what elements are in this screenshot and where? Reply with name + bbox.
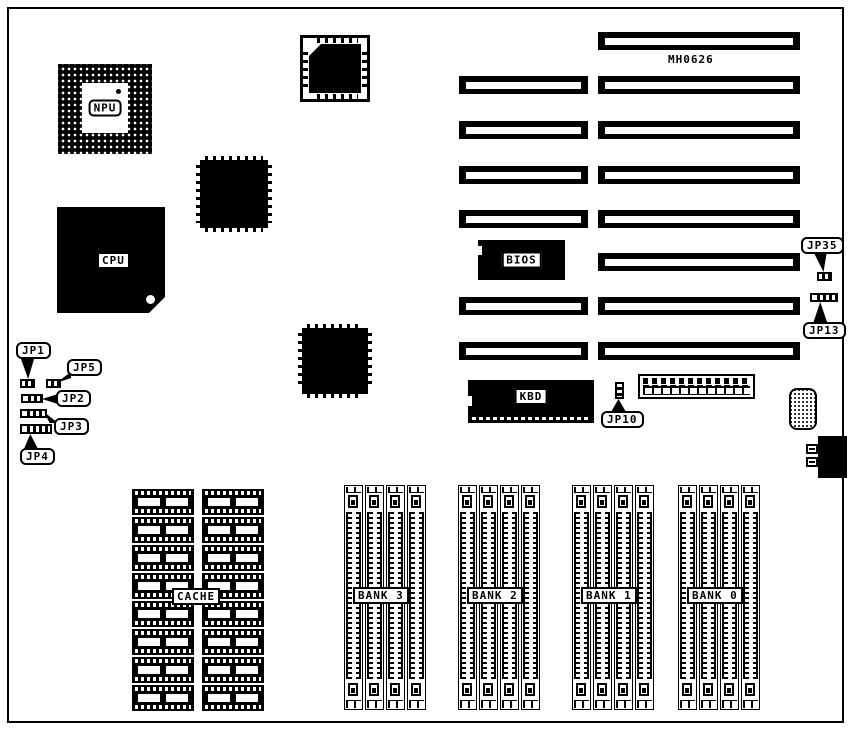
socket-latch-top-icon [724,495,734,508]
pin1-marker-icon [116,89,121,94]
simm-socket [741,485,760,710]
cache-chip-window-icon [208,610,230,618]
slot-contact-bar [605,172,793,179]
qfp-pins-icon [205,228,263,232]
socket-feet-icon [346,700,361,708]
socket-latch-bottom-icon [639,683,649,696]
socket-contacts-icon [409,512,424,679]
isa-slot-segment [598,32,800,50]
power-pin-boxes-icon [643,386,750,395]
socket-latch-top-icon [597,495,607,508]
cache-chip-window-icon [138,526,160,534]
cache-chip [132,657,194,683]
socket-header-icon [743,487,758,493]
socket-feet-icon [616,700,631,708]
cache-chip-window-icon [208,666,230,674]
socket-feet-icon [523,700,538,708]
isa-slot-segment [598,342,800,360]
slot-contact-bar [466,172,581,179]
socket-latch-top-icon [411,495,421,508]
bios-label: BIOS [501,252,542,269]
slot-contact-bar [605,259,793,266]
buzzer [789,388,817,430]
isa-slot-segment [598,253,800,271]
cache-chip [202,685,264,711]
power-pins-icon [643,378,750,384]
isa-slot-segment [598,166,800,184]
isa-slot-segment [598,121,800,139]
slot-contact-bar [605,216,793,223]
cache-chip-window-icon [138,666,160,674]
slot-contact-bar [605,127,793,134]
socket-latch-top-icon [462,495,472,508]
cache-chip [202,657,264,683]
isa-slot-segment [459,121,588,139]
kbd-label: KBD [515,388,548,405]
cache-chip [202,517,264,543]
socket-latch-top-icon [483,495,493,508]
socket-latch-top-icon [618,495,628,508]
cache-chip [132,517,194,543]
socket-latch-bottom-icon [682,683,692,696]
socket-feet-icon [460,700,475,708]
qfp-pins-icon [268,165,272,223]
socket-latch-top-icon [576,495,586,508]
qfp-pins-icon [307,324,363,328]
jp4-callout: JP4 [20,448,55,465]
cache-chip-window-icon [138,554,160,562]
isa-slot-segment [459,76,588,94]
socket-latch-bottom-icon [703,683,713,696]
cache-chip-window-icon [208,694,230,702]
slot-contact-bar [466,216,581,223]
qfp-pins-icon [196,165,200,223]
socket-feet-icon [574,700,589,708]
slot-contact-bar [466,127,581,134]
slot-contact-bar [605,348,793,355]
slot-contact-bar [605,303,793,310]
jp5-callout: JP5 [67,359,102,376]
jumper-jp13 [810,293,838,302]
socket-latch-top-icon [745,495,755,508]
socket-latch-top-icon [390,495,400,508]
isa-slot-segment [459,210,588,228]
socket-feet-icon [637,700,652,708]
qfp-pins-icon [298,333,302,389]
motherboard-diagram: NPU CPU MH0626 BIOS KBD [0,0,852,731]
chip-notch-icon [468,396,472,406]
jp35-callout: JP35 [801,237,844,254]
jp1-callout: JP1 [16,342,51,359]
socket-latch-top-icon [525,495,535,508]
cache-label: CACHE [172,588,220,605]
jumper-jp1 [20,379,35,388]
socket-header-icon [595,487,610,493]
cache-chip [132,545,194,571]
chip-notch-icon [478,246,482,255]
socket-latch-bottom-icon [597,683,607,696]
cache-chip [132,629,194,655]
qfp-pins-icon [368,333,372,389]
socket-header-icon [481,487,496,493]
socket-latch-top-icon [369,495,379,508]
bank-label: BANK 2 [467,587,523,604]
socket-header-icon [574,487,589,493]
jp10-callout: JP10 [601,411,644,428]
cache-chip-window-icon [138,582,160,590]
jumper-jp10 [615,382,624,399]
socket-feet-icon [722,700,737,708]
bank-label: BANK 1 [581,587,637,604]
slot-contact-bar [466,82,581,89]
npu-label: NPU [89,100,122,117]
cache-chip [202,489,264,515]
socket-feet-icon [680,700,695,708]
socket-header-icon [388,487,403,493]
qfp-pins-icon [307,394,363,398]
board-model-label: MH0626 [668,53,714,66]
socket-header-icon [722,487,737,493]
qfp-chip-2 [302,328,368,394]
cache-chip-window-icon [138,610,160,618]
socket-latch-bottom-icon [483,683,493,696]
plcc-pins-top-icon [312,38,358,43]
socket-header-icon [367,487,382,493]
jumper-jp35 [817,272,832,281]
pin1-marker-icon [146,295,155,304]
socket-latch-bottom-icon [525,683,535,696]
jumper-jp3 [20,409,47,418]
isa-slot-segment [598,297,800,315]
socket-latch-top-icon [682,495,692,508]
socket-feet-icon [481,700,496,708]
socket-feet-icon [409,700,424,708]
bank-label: BANK 0 [687,587,743,604]
socket-header-icon [701,487,716,493]
connector-tab-icon [806,457,818,467]
plcc-chip [300,35,370,102]
socket-latch-bottom-icon [724,683,734,696]
isa-slot-segment [459,166,588,184]
socket-header-icon [616,487,631,493]
socket-feet-icon [701,700,716,708]
qfp-chip-1 [200,160,268,228]
power-connector [638,374,755,399]
socket-header-icon [409,487,424,493]
cache-chip [202,545,264,571]
cache-chip-window-icon [208,526,230,534]
plcc-die [309,44,361,93]
socket-header-icon [460,487,475,493]
isa-slot-segment [598,210,800,228]
cache-chip-window-icon [208,498,230,506]
socket-latch-bottom-icon [348,683,358,696]
socket-feet-icon [595,700,610,708]
jp13-callout: JP13 [803,322,846,339]
keyboard-din-connector [818,436,847,478]
npu-socket-cavity: NPU [82,83,128,133]
socket-contacts-icon [523,512,538,679]
cache-chip [132,685,194,711]
simm-socket [407,485,426,710]
simm-socket [521,485,540,710]
socket-latch-top-icon [703,495,713,508]
socket-header-icon [502,487,517,493]
socket-feet-icon [367,700,382,708]
slot-contact-bar [605,82,793,89]
socket-latch-bottom-icon [745,683,755,696]
plcc-pins-bottom-icon [312,94,358,99]
cache-chip-window-icon [208,638,230,646]
connector-tab-icon [806,444,818,454]
plcc-pins-right-icon [362,47,367,90]
socket-latch-top-icon [348,495,358,508]
npu-socket: NPU [58,64,152,154]
socket-header-icon [346,487,361,493]
cache-chip-window-icon [208,554,230,562]
socket-latch-bottom-icon [462,683,472,696]
cache-chip-window-icon [138,638,160,646]
jumper-jp2 [21,394,43,403]
socket-latch-bottom-icon [369,683,379,696]
socket-latch-bottom-icon [411,683,421,696]
jp2-callout: JP2 [56,390,91,407]
isa-slot-segment [459,342,588,360]
jp3-callout: JP3 [54,418,89,435]
bank-label: BANK 3 [353,587,409,604]
bios-chip: BIOS [478,240,565,280]
plcc-pins-left-icon [303,47,308,90]
slot-contact-bar [466,303,581,310]
socket-latch-bottom-icon [504,683,514,696]
simm-socket [635,485,654,710]
slot-contact-bar [466,348,581,355]
socket-latch-top-icon [639,495,649,508]
cache-chip-window-icon [138,498,160,506]
socket-header-icon [680,487,695,493]
socket-feet-icon [502,700,517,708]
cache-chip [132,489,194,515]
socket-contacts-icon [743,512,758,679]
socket-feet-icon [388,700,403,708]
cpu-label: CPU [97,252,130,269]
kbd-chip: KBD [468,380,594,423]
socket-latch-bottom-icon [618,683,628,696]
jumper-jp4 [20,424,52,434]
socket-latch-top-icon [504,495,514,508]
isa-slot-segment [598,76,800,94]
qfp-pins-icon [205,156,263,160]
socket-latch-bottom-icon [390,683,400,696]
slot-contact-bar [605,38,793,45]
socket-contacts-icon [637,512,652,679]
socket-header-icon [637,487,652,493]
kbd-pin-row-icon [472,417,590,420]
jumper-jp5 [46,379,61,388]
isa-slot-segment [459,297,588,315]
socket-latch-bottom-icon [576,683,586,696]
socket-header-icon [523,487,538,493]
cache-chip [202,629,264,655]
cache-chip-window-icon [138,694,160,702]
socket-feet-icon [743,700,758,708]
